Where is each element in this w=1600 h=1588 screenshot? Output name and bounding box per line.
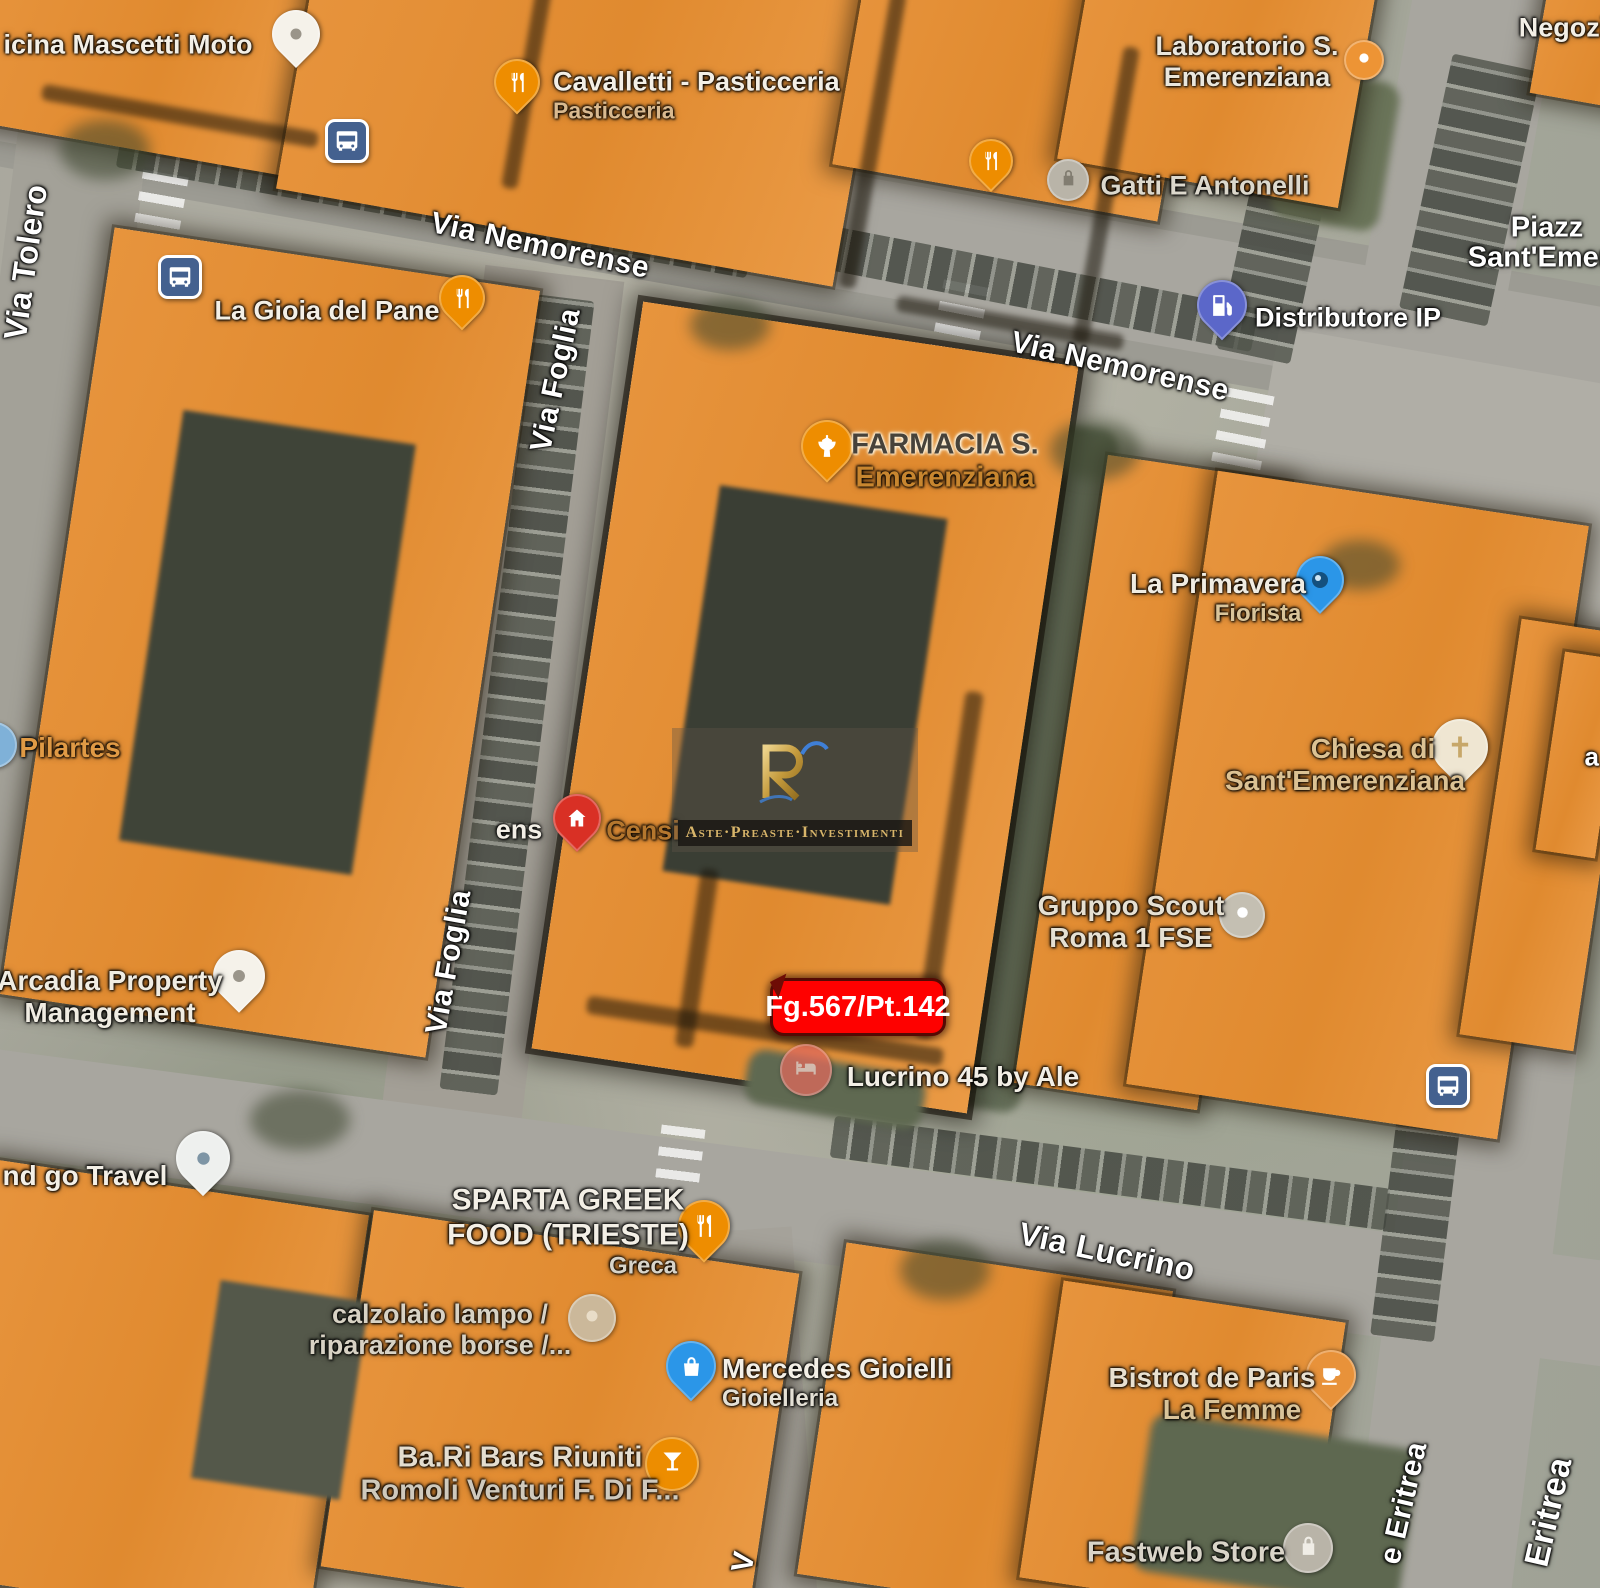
- censi-house-icon[interactable]: [543, 784, 611, 852]
- poi-label-line: SPARTA GREEK: [447, 1184, 689, 1219]
- bed-glyph: [793, 1055, 819, 1086]
- poi-label-line: nd go Travel: [3, 1160, 168, 1192]
- poi-label-line: Roma 1 FSE: [1038, 922, 1225, 954]
- tree-shape: [1050, 420, 1140, 480]
- poi-label-line: Negozi: [1519, 12, 1600, 43]
- poi-label-line: FOOD (TRIESTE): [447, 1218, 689, 1253]
- bus-stop-icon[interactable]: [1426, 1064, 1470, 1108]
- dot-glyph: [580, 1304, 604, 1333]
- dot-glyph: [1354, 48, 1374, 73]
- poi-label-line: La Femme: [1129, 1394, 1336, 1426]
- gruppo-scout-roma-1-fse-dot-icon[interactable]: [1219, 892, 1265, 938]
- tree-shape: [690, 300, 770, 350]
- poi-label-line: Lucrino 45 by Ale: [847, 1061, 1079, 1093]
- watermark-ri-logo: [756, 736, 834, 806]
- poi-label-line: La Gioia del Pane: [214, 295, 439, 326]
- poi-label-officina-mascetti-moto[interactable]: icina Mascetti Moto: [3, 29, 252, 60]
- dot-glyph: [0, 731, 6, 759]
- tree-shape: [900, 1240, 990, 1300]
- poi-label-chiesa-di-sant-emerenziana[interactable]: Chiesa diSant'Emerenziana: [1225, 733, 1465, 797]
- poi-label-line: riparazione borse /...: [309, 1330, 572, 1361]
- poi-label-line: icina Mascetti Moto: [3, 29, 252, 60]
- lock-glyph: [1058, 167, 1079, 193]
- house-glyph: [553, 794, 601, 842]
- poi-label-arcadia-property-management[interactable]: Arcadia PropertyManagement: [0, 965, 223, 1029]
- poi-label-lucrino-45-by-ale[interactable]: Lucrino 45 by Ale: [847, 1061, 1079, 1093]
- tree-shape: [250, 1090, 350, 1150]
- poi-label-line: Distributore IP: [1255, 302, 1441, 333]
- poi-label-line: Laboratorio S.: [1155, 31, 1338, 62]
- watermark-band: Aste·Preaste·Investimenti: [678, 820, 912, 846]
- mortar-glyph: [801, 420, 853, 472]
- bus-stop-icon[interactable]: [158, 255, 202, 299]
- satellite-map[interactable]: Via NemorenseVia NemorenseVia ToleroVia …: [0, 0, 1600, 1588]
- watermark: Aste·Preaste·Investimenti: [672, 728, 918, 852]
- officina-mascetti-moto-dot-icon[interactable]: [262, 0, 330, 68]
- poi-label-calzolaio-lampo[interactable]: calzolaio lampo /riparazione borse /...: [309, 1299, 572, 1361]
- distributore-ip-pump-icon[interactable]: [1187, 270, 1258, 341]
- poi-label-laboratorio-s-emerenziana[interactable]: Laboratorio S.Emerenziana: [1155, 31, 1338, 93]
- poi-label-line: Gioielleria: [722, 1385, 952, 1413]
- poi-label-line: Sant'Emerenziana: [1225, 765, 1465, 797]
- poi-label-ba-ri-bars-riuniti[interactable]: Ba.Ri Bars RiunitiRomoli Venturi F. Di F…: [360, 1442, 679, 1509]
- mercedes-gioielli-bag-icon[interactable]: [656, 1331, 727, 1402]
- bag-glyph: [666, 1341, 716, 1391]
- poi-label-line: Censi: [606, 815, 680, 846]
- fork-glyph: [969, 139, 1013, 183]
- parcel-badge-text: Fg.567/Pt.142: [765, 991, 950, 1024]
- poi-label-line: FARMACIA S.: [851, 429, 1038, 462]
- poi-label-line: Greca: [522, 1253, 764, 1281]
- calzolaio-lampo-dot-icon[interactable]: [568, 1294, 616, 1342]
- poi-label-cavalletti-pasticceria[interactable]: Cavalletti - PasticceriaPasticceria: [553, 66, 840, 123]
- dot-glyph: [272, 10, 320, 58]
- dot-glyph: [1231, 901, 1254, 929]
- poi-label-piazza-sant-emerenziana-line2[interactable]: Sant'Emere: [1468, 241, 1600, 274]
- poi-label-line: ens: [496, 814, 543, 845]
- poi-label-line: Sant'Emere: [1468, 241, 1600, 274]
- poi-label-line: Mercedes Gioielli: [722, 1353, 952, 1385]
- poi-label-and-go-travel[interactable]: nd go Travel: [3, 1160, 168, 1192]
- poi-label-farmacia-s-emerenziana[interactable]: FARMACIA S.Emerenziana: [851, 429, 1038, 496]
- lock-glyph: [1296, 1533, 1321, 1563]
- street-label: a: [1585, 742, 1600, 773]
- poi-label-label-fragment-ens[interactable]: ens: [496, 814, 543, 845]
- street-label: Eritrea: [1517, 1453, 1580, 1570]
- poi-label-pilartes[interactable]: Pilartes: [19, 732, 120, 764]
- poi-label-piazza-sant-emerenziana-line1[interactable]: Piazz: [1511, 211, 1584, 244]
- poi-label-line: Romoli Venturi F. Di F...: [360, 1475, 679, 1508]
- poi-label-line: Gatti E Antonelli: [1101, 170, 1310, 201]
- poi-label-fastweb-store[interactable]: Fastweb Store: [1087, 1536, 1285, 1569]
- poi-label-line: Fastweb Store: [1087, 1536, 1285, 1569]
- poi-label-sparta-greek-food[interactable]: SPARTA GREEKFOOD (TRIESTE)Greca: [447, 1184, 689, 1281]
- poi-label-distributore-ip[interactable]: Distributore IP: [1255, 302, 1441, 333]
- poi-label-line: Fiorista: [1170, 600, 1346, 628]
- poi-label-mercedes-gioielli[interactable]: Mercedes GioielliGioielleria: [722, 1353, 952, 1413]
- poi-label-line: La Primavera: [1130, 568, 1306, 600]
- gatti-e-antonelli-fork-icon[interactable]: [960, 130, 1022, 192]
- fastweb-store-lock-icon[interactable]: [1283, 1523, 1333, 1573]
- lucrino-45-by-ale-bed-icon[interactable]: [780, 1044, 832, 1096]
- fork-glyph: [439, 275, 485, 321]
- pump-glyph: [1197, 280, 1247, 330]
- poi-label-line: Emerenziana: [851, 462, 1038, 495]
- poi-label-line: Pasticceria: [553, 97, 840, 123]
- bus-stop-icon[interactable]: [325, 119, 369, 163]
- poi-label-bistrot-de-paris-la-femme[interactable]: Bistrot de ParisLa Femme: [1109, 1362, 1316, 1426]
- poi-label-line: Ba.Ri Bars Riuniti: [360, 1442, 679, 1475]
- parcel-badge: Fg.567/Pt.142: [770, 978, 946, 1036]
- poi-label-line: Bistrot de Paris: [1109, 1362, 1316, 1394]
- poi-label-line: Emerenziana: [1155, 62, 1338, 93]
- poi-label-line: Gruppo Scout: [1038, 890, 1225, 922]
- poi-label-la-gioia-del-pane[interactable]: La Gioia del Pane: [214, 295, 439, 326]
- laboratorio-s-emerenziana-dot-icon[interactable]: [1344, 40, 1384, 80]
- poi-label-line: Pilartes: [19, 732, 120, 764]
- dot-glyph: [176, 1131, 230, 1185]
- gatti-e-antonelli-lock-icon[interactable]: [1047, 159, 1089, 201]
- poi-label-la-primavera-fiorista[interactable]: La PrimaveraFiorista: [1130, 568, 1306, 628]
- poi-label-line: Arcadia Property: [0, 965, 223, 997]
- poi-label-negozi[interactable]: Negozi: [1519, 12, 1600, 43]
- poi-label-gatti-e-antonelli[interactable]: Gatti E Antonelli: [1101, 170, 1310, 201]
- poi-label-gruppo-scout-roma-1-fse[interactable]: Gruppo ScoutRoma 1 FSE: [1038, 890, 1225, 954]
- poi-label-line: Piazz: [1511, 211, 1584, 244]
- poi-label-line: Management: [0, 997, 223, 1029]
- tree-shape: [60, 120, 150, 180]
- watermark-tagline: Aste·Preaste·Investimenti: [686, 824, 905, 842]
- poi-label-line: calzolaio lampo /: [309, 1299, 572, 1330]
- poi-label-line: Cavalletti - Pasticceria: [553, 66, 840, 97]
- and-go-travel-dot-icon[interactable]: [165, 1119, 241, 1195]
- poi-label-line: Chiesa di: [1253, 733, 1493, 765]
- poi-label-censi[interactable]: Censi: [606, 815, 680, 846]
- fork-glyph: [494, 59, 540, 105]
- zebra-shape: [655, 1125, 706, 1190]
